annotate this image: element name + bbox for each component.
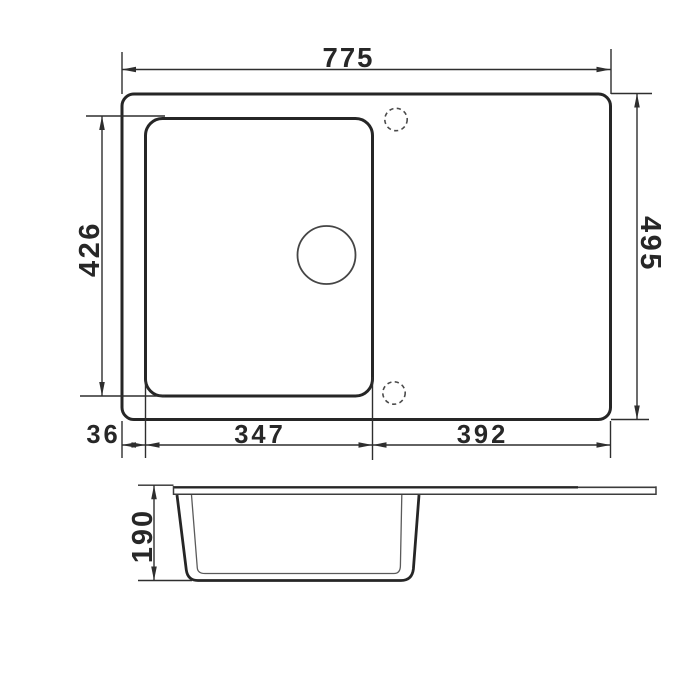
svg-text:190: 190 — [127, 509, 159, 563]
svg-text:347: 347 — [234, 421, 286, 449]
svg-text:426: 426 — [74, 221, 106, 277]
svg-text:495: 495 — [634, 216, 666, 272]
svg-text:775: 775 — [323, 42, 375, 73]
svg-text:392: 392 — [457, 421, 509, 449]
svg-text:36: 36 — [86, 421, 120, 449]
